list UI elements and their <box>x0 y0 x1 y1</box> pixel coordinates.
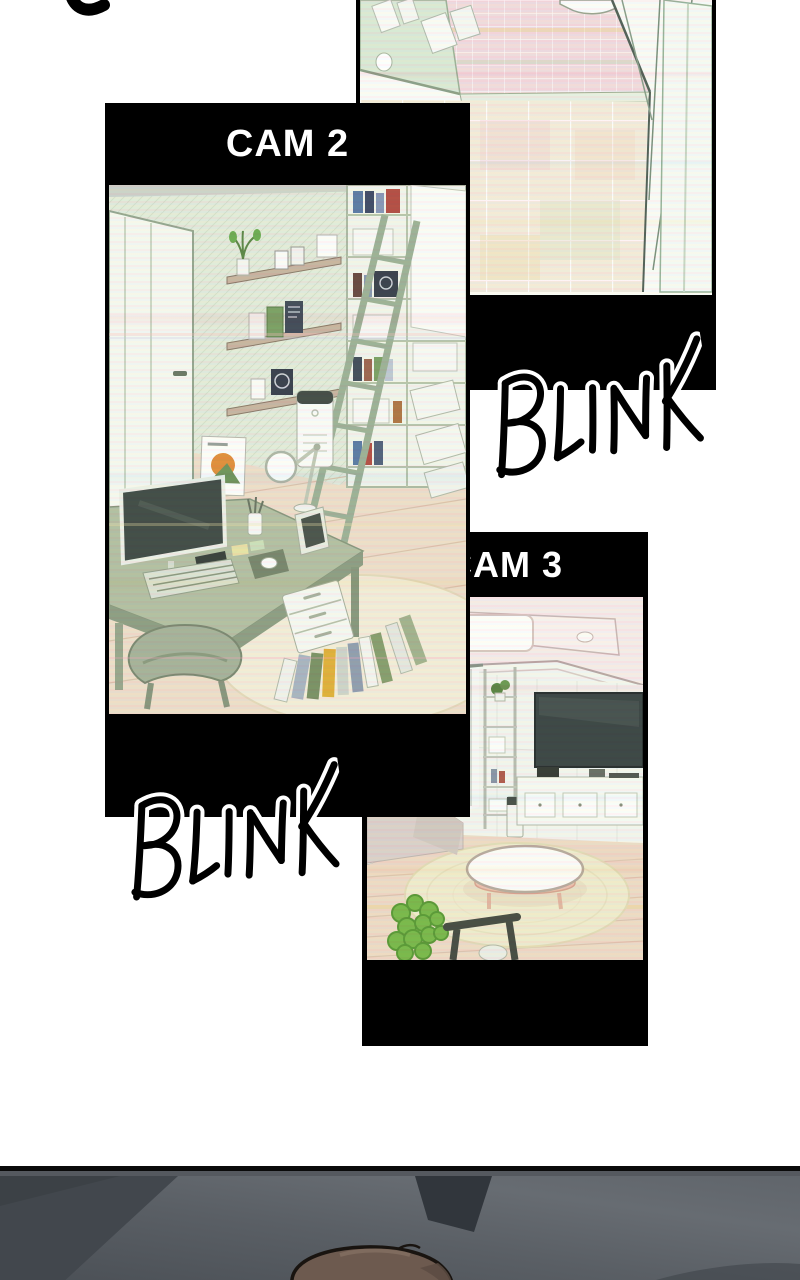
comic-page: CAM 3 <box>0 0 800 1280</box>
sfx-blink-left: BLINK <box>104 750 357 934</box>
panel-cam2: CAM 2 <box>105 103 470 817</box>
sfx-ink-remnant <box>64 0 112 20</box>
cam2-label: CAM 2 <box>226 123 349 166</box>
sfx-blink-left-art <box>104 750 356 929</box>
whiteboard <box>411 185 466 337</box>
coffee-table <box>463 846 587 909</box>
ink-stroke <box>70 0 104 10</box>
cam2-header: CAM 2 <box>105 103 470 185</box>
cam2-scene <box>109 185 466 714</box>
car-scene <box>0 1176 800 1280</box>
wall-tv <box>535 693 643 767</box>
door-handle <box>173 371 187 376</box>
mouse <box>261 558 277 569</box>
panel-car-interior <box>0 1166 800 1280</box>
